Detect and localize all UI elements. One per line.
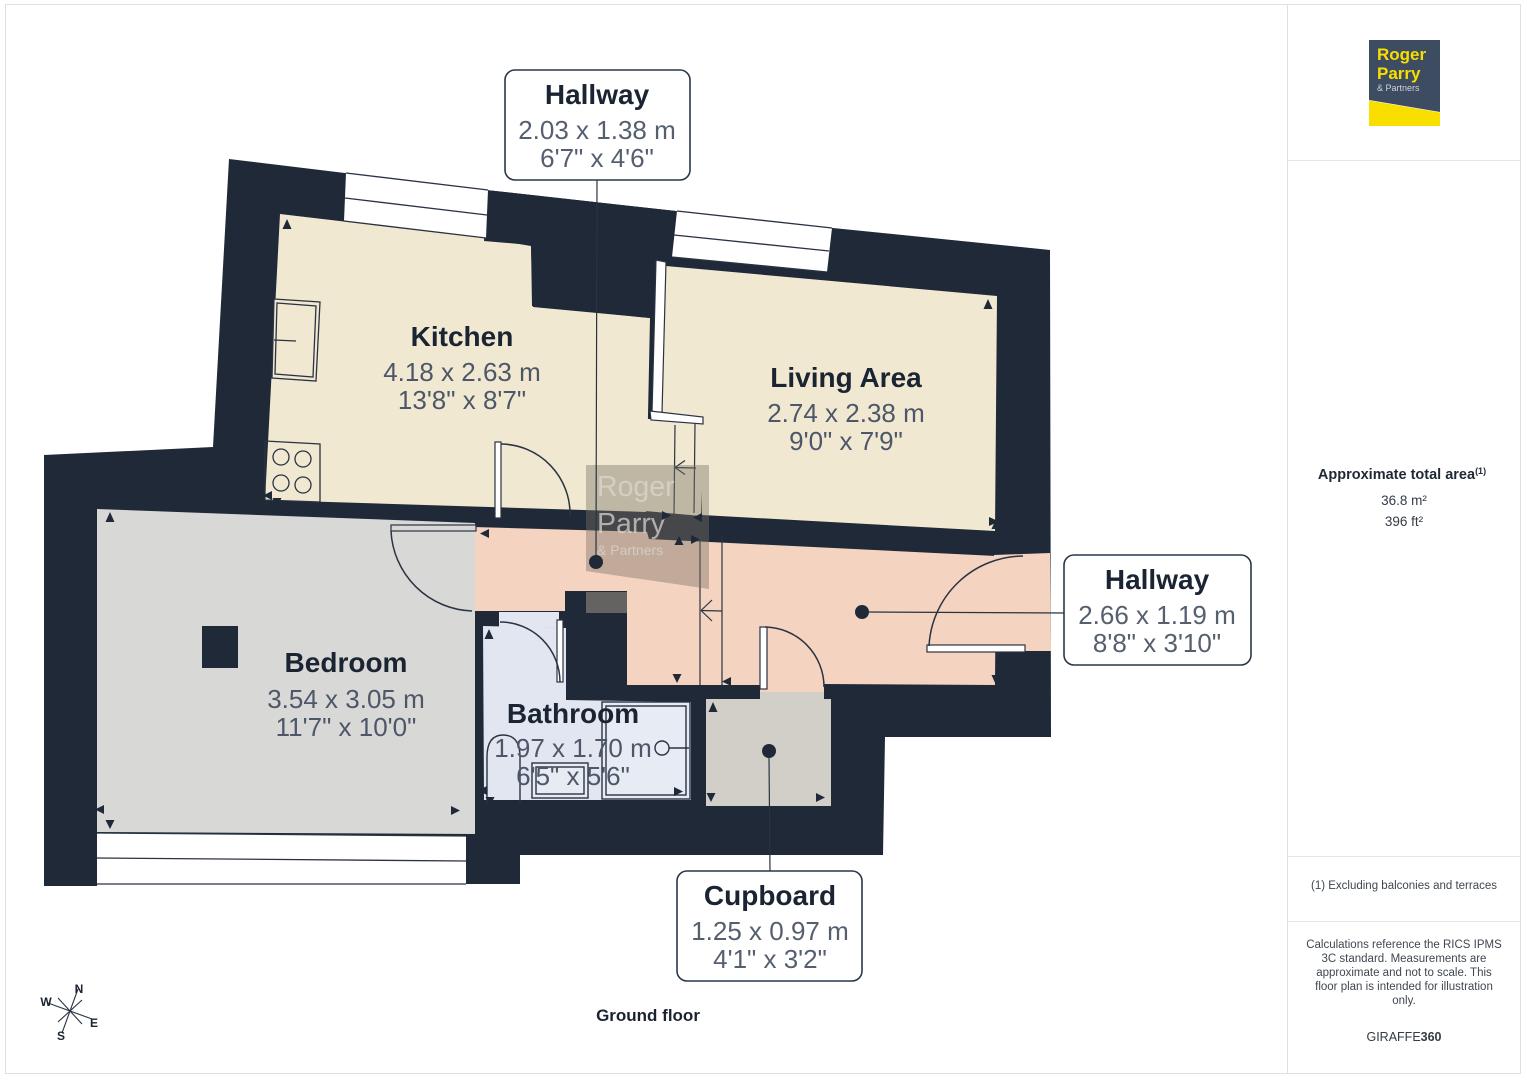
svg-text:9'0" x 7'9": 9'0" x 7'9" xyxy=(789,426,903,456)
svg-text:1.25 x 0.97 m: 1.25 x 0.97 m xyxy=(691,916,849,946)
svg-text:3C standard. Measurements are: 3C standard. Measurements are xyxy=(1322,953,1487,965)
svg-text:11'7" x 10'0": 11'7" x 10'0" xyxy=(276,712,417,742)
svg-text:& Partners: & Partners xyxy=(1377,83,1420,93)
svg-text:W: W xyxy=(40,995,52,1009)
svg-text:Living Area: Living Area xyxy=(770,362,922,393)
svg-text:Kitchen: Kitchen xyxy=(411,321,514,352)
svg-text:6'5" x 5'6": 6'5" x 5'6" xyxy=(516,761,630,791)
svg-text:2.66 x 1.19 m: 2.66 x 1.19 m xyxy=(1078,600,1236,630)
svg-text:13'8" x 8'7": 13'8" x 8'7" xyxy=(398,385,526,415)
svg-text:Roger: Roger xyxy=(597,471,675,503)
svg-text:Bedroom: Bedroom xyxy=(285,647,408,678)
svg-text:4.18 x 2.63 m: 4.18 x 2.63 m xyxy=(383,357,541,387)
svg-text:6'7" x 4'6": 6'7" x 4'6" xyxy=(540,143,654,173)
svg-text:8'8" x 3'10": 8'8" x 3'10" xyxy=(1093,628,1221,658)
svg-text:Roger: Roger xyxy=(1377,45,1427,64)
svg-text:3.54 x 3.05 m: 3.54 x 3.05 m xyxy=(267,684,425,714)
svg-text:Bathroom: Bathroom xyxy=(507,698,639,729)
svg-text:4'1" x 3'2": 4'1" x 3'2" xyxy=(713,944,827,974)
svg-text:approximate and not to scale.: approximate and not to scale. This xyxy=(1316,967,1492,979)
svg-text:36.8 m²: 36.8 m² xyxy=(1381,493,1427,508)
svg-text:Hallway: Hallway xyxy=(1105,564,1210,595)
svg-text:Parry: Parry xyxy=(597,508,666,540)
svg-text:(1) Excluding balconies and te: (1) Excluding balconies and terraces xyxy=(1311,880,1497,892)
svg-text:only.: only. xyxy=(1392,995,1415,1007)
svg-text:Cupboard: Cupboard xyxy=(704,880,836,911)
svg-text:N: N xyxy=(75,982,84,996)
svg-text:396 ft²: 396 ft² xyxy=(1385,514,1424,529)
svg-text:1.97 x 1.70 m: 1.97 x 1.70 m xyxy=(494,733,652,763)
svg-text:GIRAFFE360: GIRAFFE360 xyxy=(1366,1030,1441,1044)
svg-text:Calculations reference the RIC: Calculations reference the RICS IPMS xyxy=(1306,939,1502,951)
svg-text:2.74 x 2.38 m: 2.74 x 2.38 m xyxy=(767,398,925,428)
svg-text:Ground floor: Ground floor xyxy=(596,1006,700,1025)
svg-text:floor plan is intended for ill: floor plan is intended for illustration xyxy=(1315,981,1493,993)
svg-text:E: E xyxy=(90,1016,98,1030)
svg-text:Hallway: Hallway xyxy=(545,79,650,110)
svg-text:2.03 x 1.38 m: 2.03 x 1.38 m xyxy=(518,115,676,145)
svg-text:& Partners: & Partners xyxy=(597,542,663,558)
svg-text:S: S xyxy=(57,1029,65,1043)
svg-text:Approximate total area(1): Approximate total area(1) xyxy=(1318,466,1486,483)
svg-text:Parry: Parry xyxy=(1377,64,1421,83)
